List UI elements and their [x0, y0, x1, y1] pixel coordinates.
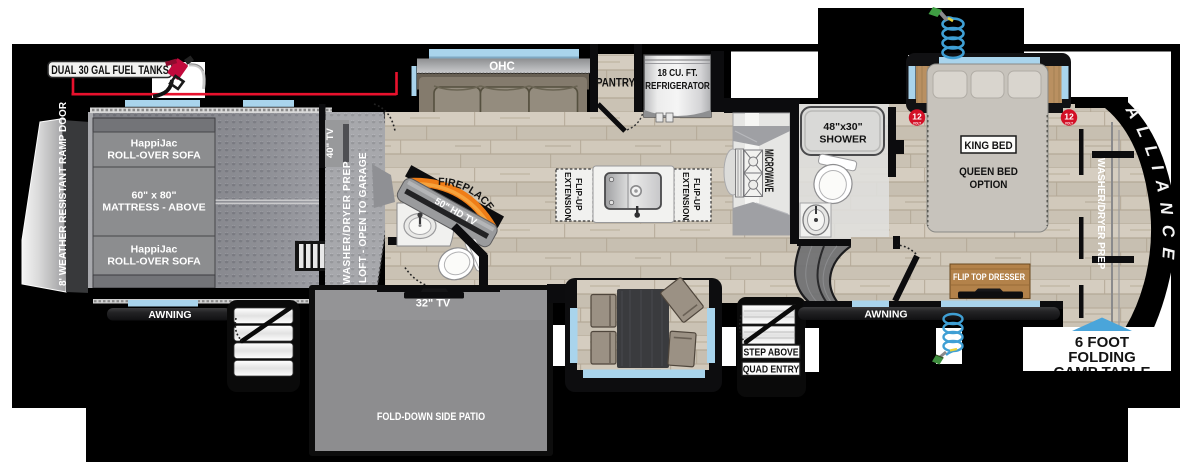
svg-text:AWNING: AWNING	[864, 309, 907, 321]
svg-text:FLIP-UP: FLIP-UP	[692, 178, 702, 211]
svg-text:18 CU. FT.: 18 CU. FT.	[657, 67, 697, 79]
svg-text:FLIP TOP DRESSER: FLIP TOP DRESSER	[953, 271, 1025, 282]
svg-text:HappiJac: HappiJac	[131, 138, 178, 150]
svg-text:FOLD-DOWN SIDE PATIO: FOLD-DOWN SIDE PATIO	[377, 411, 485, 423]
svg-text:QUAD ENTRY: QUAD ENTRY	[743, 364, 800, 376]
svg-text:32" TV: 32" TV	[416, 298, 451, 310]
svg-text:VOLT: VOLT	[913, 122, 921, 126]
svg-text:OHC: OHC	[489, 61, 515, 73]
svg-text:12: 12	[912, 112, 922, 122]
svg-text:OPTION: OPTION	[970, 180, 1008, 192]
svg-text:PANTRY: PANTRY	[596, 77, 635, 90]
svg-text:QUEEN BED: QUEEN BED	[959, 167, 1018, 179]
svg-text:MICROWAVE: MICROWAVE	[761, 149, 774, 192]
svg-text:EXTENSION: EXTENSION	[563, 172, 573, 220]
svg-text:ROLL-OVER SOFA: ROLL-OVER SOFA	[107, 256, 201, 268]
svg-text:HappiJac: HappiJac	[131, 244, 178, 256]
svg-text:EXTENSION: EXTENSION	[681, 172, 691, 220]
svg-text:AWNING: AWNING	[148, 309, 191, 321]
svg-text:40" TV: 40" TV	[325, 127, 336, 158]
svg-text:LOFT - OPEN TO GARAGE: LOFT - OPEN TO GARAGE	[358, 152, 369, 283]
svg-text:REFRIGERATOR: REFRIGERATOR	[645, 79, 710, 91]
svg-text:STEP ABOVE: STEP ABOVE	[744, 347, 800, 359]
svg-text:48"x30": 48"x30"	[823, 121, 862, 133]
svg-text:8' WEATHER RESISTANT RAMP DOOR: 8' WEATHER RESISTANT RAMP DOOR	[58, 101, 69, 286]
svg-text:WASHER/DRYER PREP: WASHER/DRYER PREP	[342, 161, 353, 284]
svg-text:DUAL 30 GAL FUEL TANKS: DUAL 30 GAL FUEL TANKS	[51, 64, 169, 78]
svg-text:FLIP-UP: FLIP-UP	[574, 178, 584, 211]
svg-text:WASHER/DRYER PREP: WASHER/DRYER PREP	[1095, 158, 1106, 270]
svg-text:60" x 80": 60" x 80"	[132, 190, 177, 202]
svg-text:MATTRESS - ABOVE: MATTRESS - ABOVE	[102, 202, 205, 214]
svg-text:VOLT: VOLT	[1065, 122, 1073, 126]
svg-text:12: 12	[1064, 112, 1074, 122]
svg-text:ROLL-OVER SOFA: ROLL-OVER SOFA	[107, 150, 201, 162]
svg-text:KING BED: KING BED	[964, 141, 1013, 153]
svg-text:SHOWER: SHOWER	[819, 134, 867, 146]
